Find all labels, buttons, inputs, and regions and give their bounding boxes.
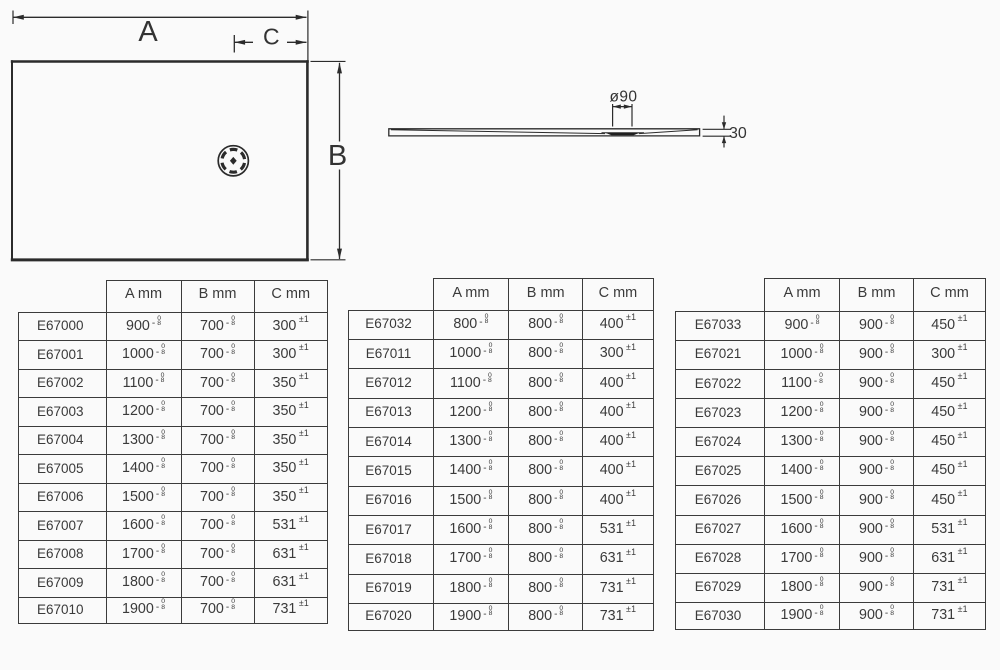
svg-text:30: 30 [729,125,747,142]
svg-text:A: A [138,16,158,48]
svg-text:C: C [263,23,280,49]
svg-text:ø90: ø90 [610,89,638,106]
svg-text:B: B [328,140,347,172]
